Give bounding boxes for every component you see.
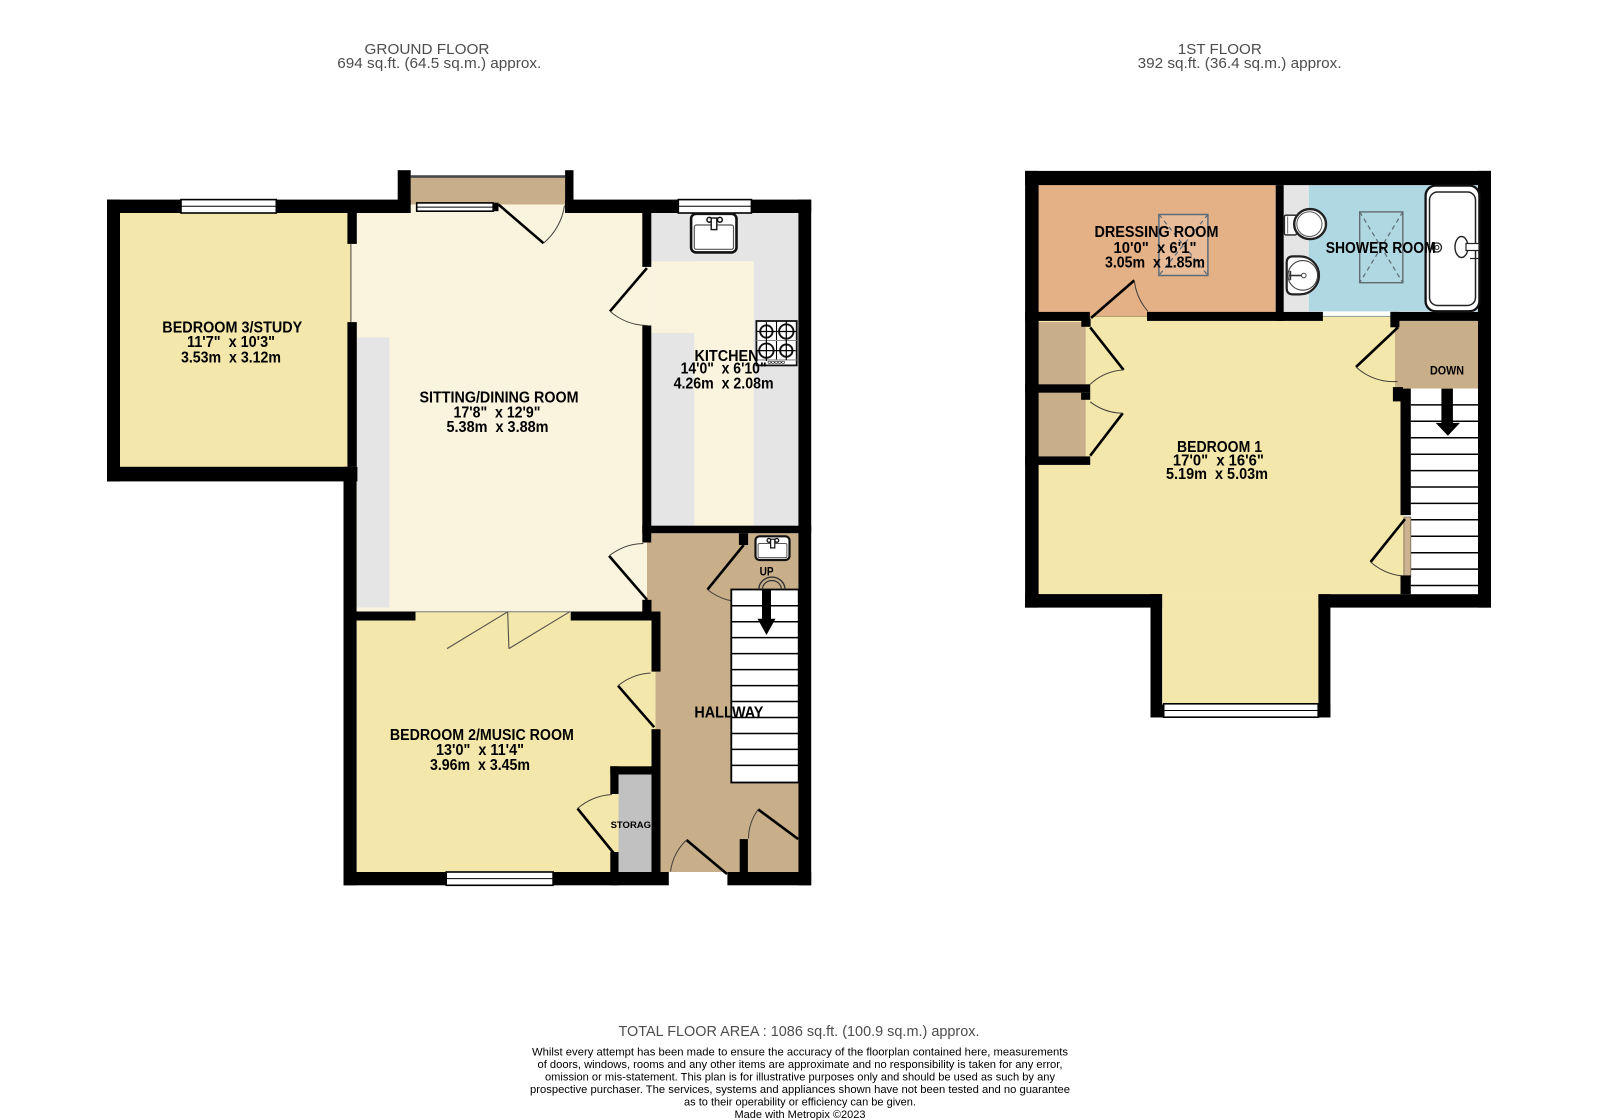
svg-text:omission or mis-statement. Thi: omission or mis-statement. This plan is … <box>545 1071 1056 1083</box>
svg-text:Made with Metropix ©2023: Made with Metropix ©2023 <box>735 1109 866 1120</box>
svg-text:UP: UP <box>760 567 774 579</box>
svg-text:SHOWER ROOM: SHOWER ROOM <box>1326 240 1436 257</box>
svg-text:Whilst every attempt has been: Whilst every attempt has been made to en… <box>532 1046 1069 1058</box>
svg-text:392 sq.ft. (36.4 sq.m.) approx: 392 sq.ft. (36.4 sq.m.) approx. <box>1138 55 1342 72</box>
svg-text:5.19m x 5.03m: 5.19m x 5.03m <box>1166 466 1268 483</box>
svg-text:694 sq.ft. (64.5 sq.m.) approx: 694 sq.ft. (64.5 sq.m.) approx. <box>337 55 541 72</box>
svg-text:3.53m x 3.12m: 3.53m x 3.12m <box>181 349 281 366</box>
svg-text:of doors, windows, rooms and a: of doors, windows, rooms and any other i… <box>538 1059 1063 1071</box>
svg-text:3.96m x 3.45m: 3.96m x 3.45m <box>430 757 530 774</box>
svg-text:DOWN: DOWN <box>1430 365 1464 377</box>
svg-text:DRESSING ROOM: DRESSING ROOM <box>1095 224 1219 241</box>
svg-text:TOTAL FLOOR AREA : 1086 sq.ft.: TOTAL FLOOR AREA : 1086 sq.ft. (100.9 sq… <box>619 1023 980 1040</box>
svg-text:as to their operability or eff: as to their operability or efficiency ca… <box>684 1096 916 1108</box>
svg-text:11'7" x 10'3": 11'7" x 10'3" <box>187 334 275 351</box>
svg-text:4.26m x 2.08m: 4.26m x 2.08m <box>674 376 774 393</box>
svg-text:3.05m x 1.85m: 3.05m x 1.85m <box>1105 255 1205 272</box>
svg-text:HALLWAY: HALLWAY <box>694 705 764 722</box>
svg-text:STORAGE: STORAGE <box>611 820 658 831</box>
svg-text:prospective purchaser. The ser: prospective purchaser. The services, sys… <box>530 1084 1070 1096</box>
svg-text:5.38m x 3.88m: 5.38m x 3.88m <box>447 419 549 436</box>
